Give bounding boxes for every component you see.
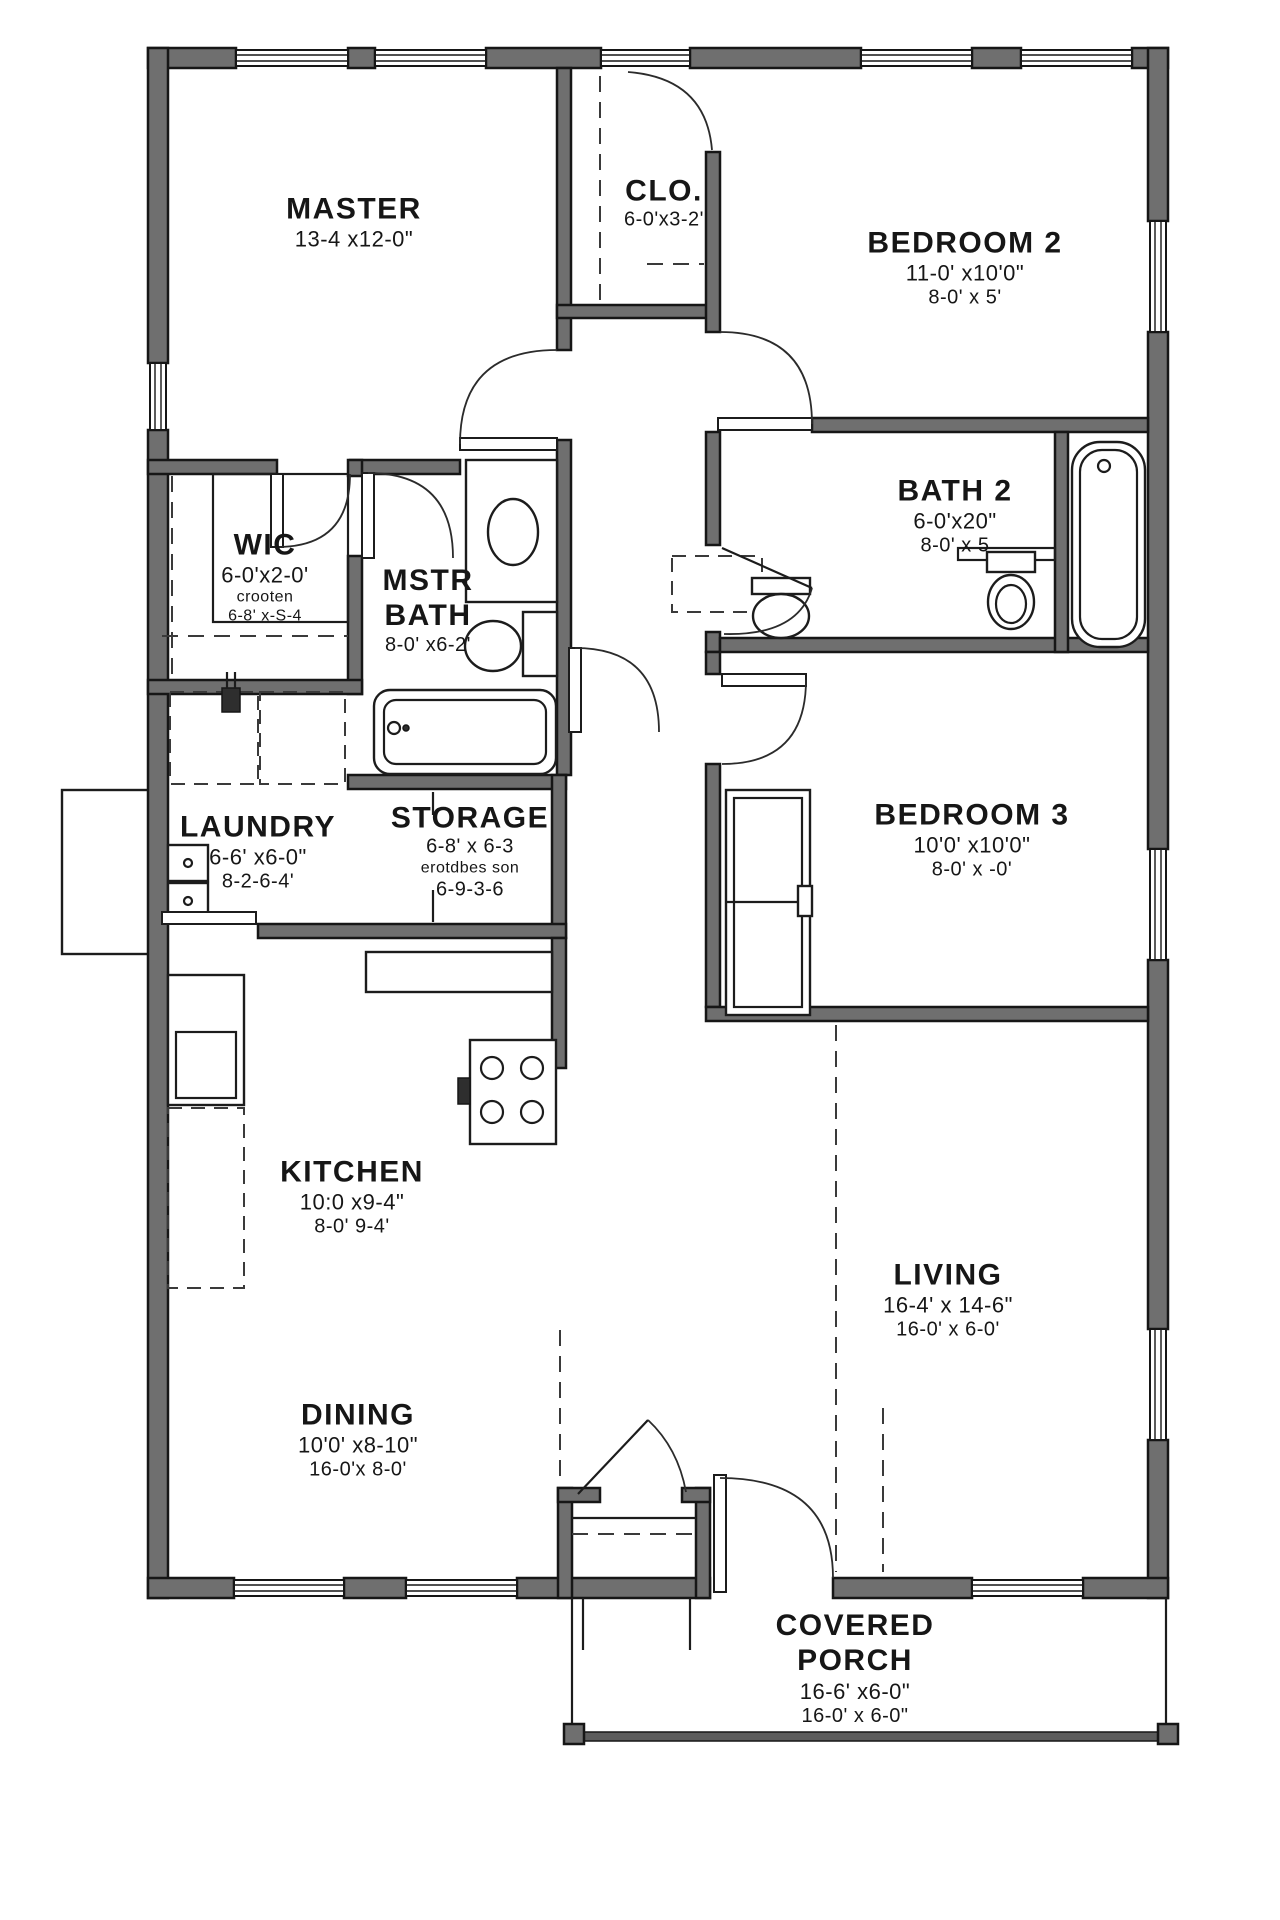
room-label-master: MASTER 13-4 x12-0" bbox=[286, 191, 422, 252]
floor-plan: MASTER 13-4 x12-0" CLO. 6-0'x3-2' BEDROO… bbox=[0, 0, 1280, 1920]
window bbox=[972, 1580, 1083, 1596]
bathtub bbox=[374, 690, 556, 774]
floor-plan-drawing bbox=[0, 0, 1280, 1920]
porch-post bbox=[1158, 1724, 1178, 1744]
front-door bbox=[714, 1475, 726, 1592]
room-label-bedroom2: BEDROOM 2 11-0' x10'0" 8-0' x 5' bbox=[867, 226, 1062, 311]
entry-closet-door bbox=[578, 1420, 648, 1494]
master-bath-door bbox=[362, 473, 374, 558]
window bbox=[1150, 1329, 1166, 1440]
porch-post bbox=[564, 1724, 584, 1744]
bathtub bbox=[1072, 442, 1145, 647]
washer-hookup bbox=[222, 688, 240, 712]
stove bbox=[470, 1040, 556, 1144]
wardrobe-handle bbox=[798, 886, 812, 916]
exterior-bumpout bbox=[62, 790, 150, 954]
room-label-storage: STORAGE 6-8' x 6-3 erotdbes son 6-9-3-6 bbox=[391, 800, 549, 901]
bedroom3-door bbox=[722, 674, 806, 686]
toilet-bowl bbox=[988, 575, 1034, 629]
bedroom2-door bbox=[718, 418, 812, 430]
room-label-covered-porch: COVERED PORCH 16-6' x6-0" 16-0' x 6-0" bbox=[776, 1608, 935, 1728]
linen-closet-dashed bbox=[672, 556, 762, 612]
room-label-bedroom3: BEDROOM 3 10'0' x10'0" 8-0' x -0' bbox=[874, 798, 1069, 883]
stove-handle bbox=[458, 1078, 470, 1104]
counter bbox=[366, 952, 552, 992]
hall-door bbox=[569, 648, 581, 732]
toilet-tank bbox=[523, 612, 557, 676]
room-label-kitchen: KITCHEN 10:0 x9-4" 8-0' 9-4' bbox=[280, 1155, 424, 1240]
window bbox=[861, 50, 972, 66]
window bbox=[150, 363, 166, 430]
room-label-master-bath: MSTR BATH 8-0' x6-2' bbox=[383, 563, 474, 657]
window bbox=[601, 50, 690, 66]
window bbox=[1150, 221, 1166, 332]
laundry-door bbox=[162, 912, 256, 924]
washer-dashed bbox=[170, 692, 258, 784]
room-label-wic: WIC 6-0'x2-0' crooten 6-8' x-S-4 bbox=[221, 527, 309, 626]
porch-edge bbox=[564, 1732, 1178, 1741]
room-label-closet: CLO. 6-0'x3-2' bbox=[624, 174, 704, 233]
kitchen-fixtures bbox=[168, 952, 556, 1144]
window bbox=[1150, 849, 1166, 960]
room-label-living: LIVING 16-4' x 14-6" 16-0' x 6-0' bbox=[883, 1258, 1013, 1343]
room-label-bath2: BATH 2 6-0'x20" 8-0' x 5 bbox=[897, 474, 1012, 559]
sink bbox=[488, 499, 538, 565]
sink-backsplash bbox=[752, 578, 810, 594]
counter bbox=[168, 975, 244, 1105]
dryer-dashed bbox=[260, 692, 345, 784]
window bbox=[1021, 50, 1132, 66]
room-label-laundry: LAUNDRY 6-6' x6-0" 8-2-6-4' bbox=[180, 810, 336, 895]
window bbox=[375, 50, 486, 66]
window bbox=[406, 1580, 517, 1596]
counter-dashed bbox=[168, 1108, 244, 1288]
room-label-dining: DINING 10'0' x8-10" 16-0'x 8-0' bbox=[298, 1398, 418, 1483]
entry-closet bbox=[572, 1518, 696, 1534]
bedroom3-wardrobe bbox=[726, 790, 812, 1015]
window bbox=[234, 1580, 344, 1596]
window bbox=[236, 50, 348, 66]
master-door bbox=[460, 438, 557, 450]
